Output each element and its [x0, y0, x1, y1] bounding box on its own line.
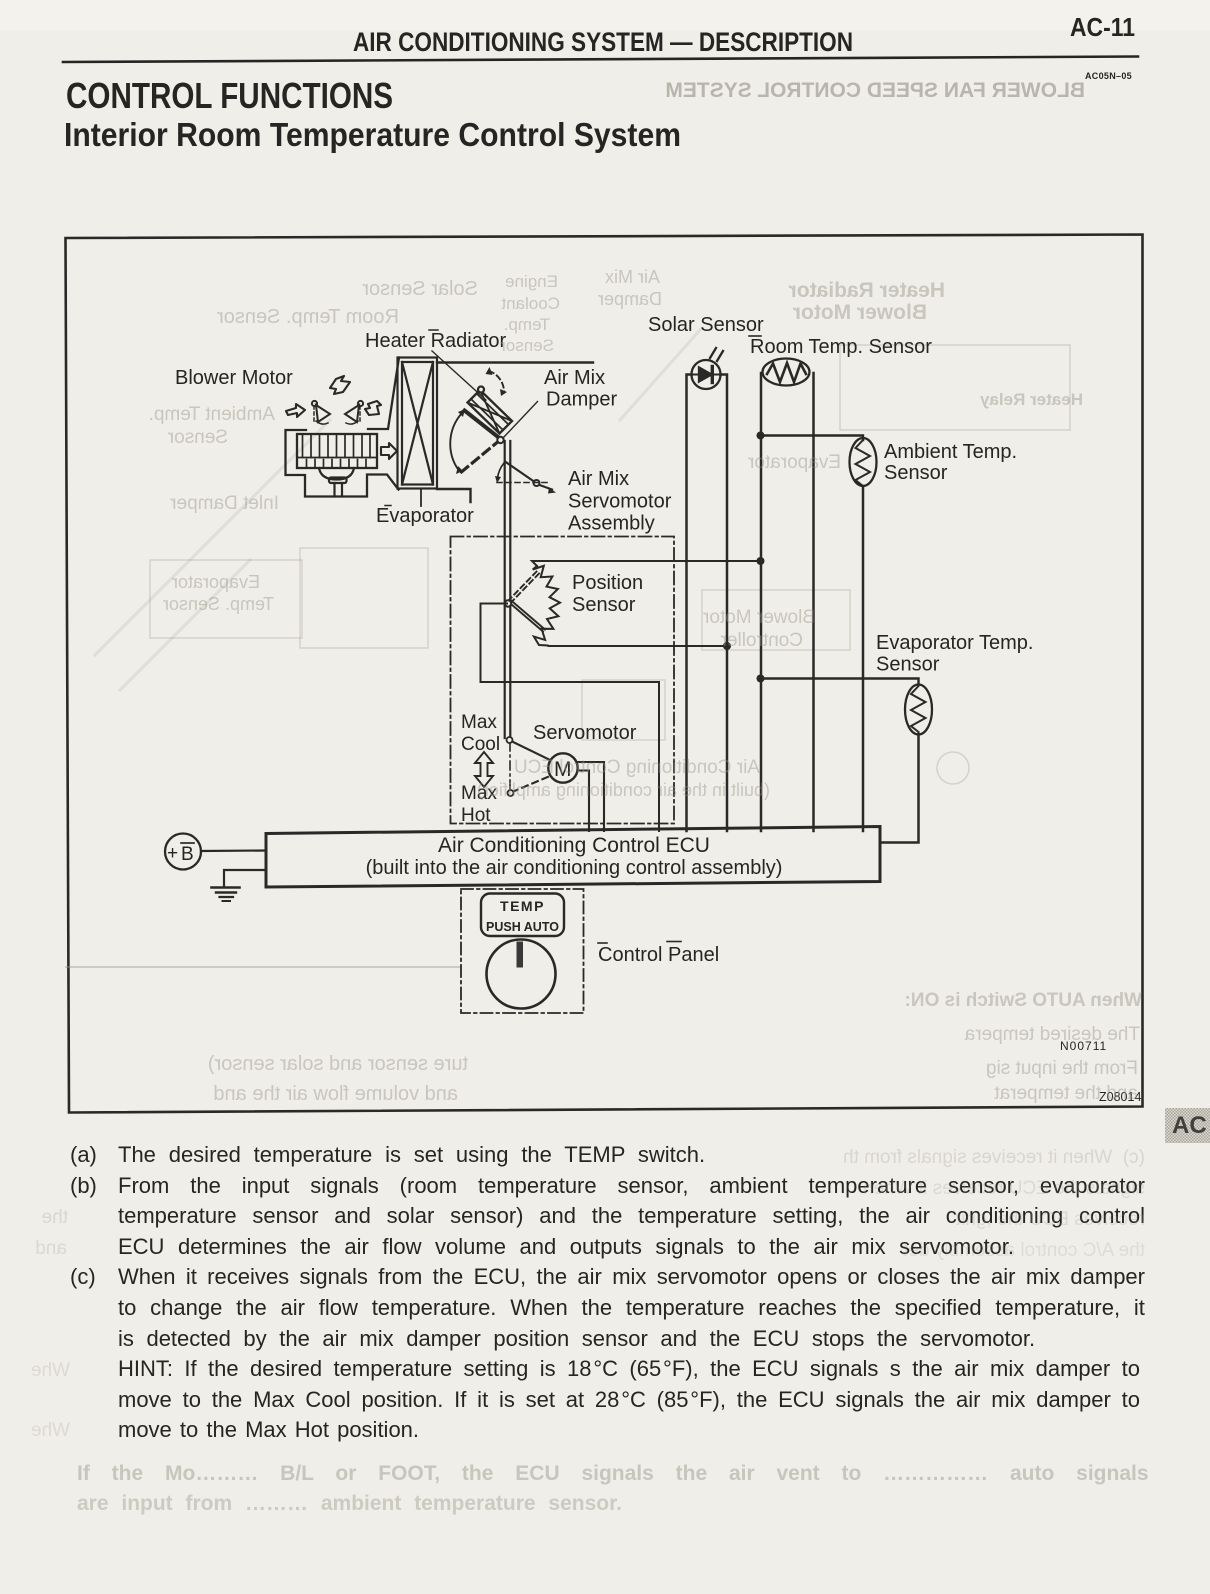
svg-text:Damper: Damper: [546, 389, 617, 411]
svg-text:Assembly: Assembly: [568, 513, 655, 535]
svg-text:Hot: Hot: [461, 805, 491, 826]
svg-text:+: +: [167, 843, 178, 864]
svg-text:Sensor: Sensor: [876, 654, 940, 676]
svg-text:Evaporator: Evaporator: [376, 505, 474, 527]
svg-text:Sensor: Sensor: [884, 462, 948, 484]
svg-text:(built into the air conditioni: (built into the air conditioning control…: [366, 857, 783, 879]
svg-text:Evaporator Temp.: Evaporator Temp.: [876, 632, 1034, 654]
svg-text:Solar Sensor: Solar Sensor: [648, 314, 764, 336]
svg-text:Heater Radiator: Heater Radiator: [365, 330, 507, 352]
svg-text:B: B: [181, 844, 194, 865]
svg-text:Air Mix: Air Mix: [544, 367, 605, 389]
svg-text:Servomotor: Servomotor: [533, 722, 637, 744]
svg-text:Room Temp. Sensor: Room Temp. Sensor: [750, 336, 932, 358]
svg-text:Control Panel: Control Panel: [598, 944, 719, 966]
svg-text:Air Conditioning Control ECU: Air Conditioning Control ECU: [438, 834, 710, 857]
svg-text:Blower Motor: Blower Motor: [175, 367, 293, 389]
svg-text:Cool: Cool: [461, 734, 500, 755]
svg-text:PUSH AUTO: PUSH AUTO: [486, 920, 559, 934]
svg-text:Position: Position: [572, 572, 643, 594]
svg-text:Sensor: Sensor: [572, 594, 636, 616]
svg-text:Max: Max: [461, 712, 497, 733]
svg-text:TEMP: TEMP: [500, 898, 545, 914]
svg-text:Air Mix: Air Mix: [568, 468, 629, 490]
svg-text:Ambient Temp.: Ambient Temp.: [884, 441, 1017, 463]
svg-text:Servomotor: Servomotor: [568, 491, 672, 513]
